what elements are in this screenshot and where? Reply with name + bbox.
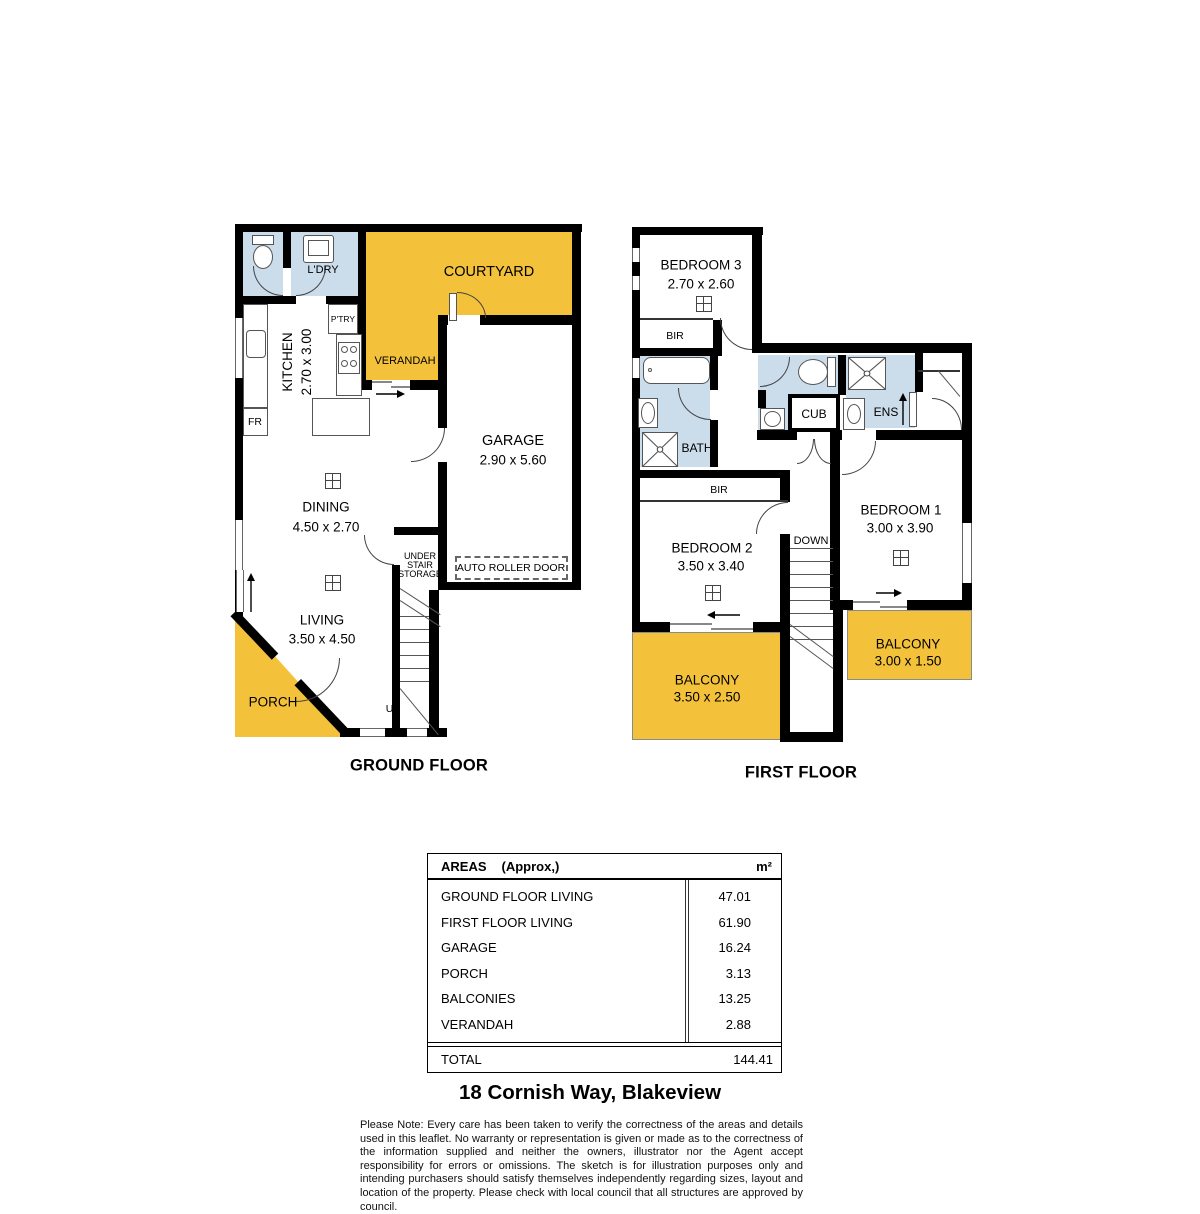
under-stair-label: STORAGE — [398, 569, 442, 579]
room-label-ens: ENS — [874, 405, 899, 419]
window-symbol — [696, 296, 712, 312]
sliding-door — [670, 623, 712, 625]
room-dims-living: 3.50 x 4.50 — [289, 632, 356, 647]
table-row: GROUND FLOOR LIVING 47.01 — [428, 884, 781, 910]
areas-table-body: GROUND FLOOR LIVING 47.01 FIRST FLOOR LI… — [428, 880, 781, 1043]
door-arc — [411, 428, 445, 462]
window — [360, 728, 385, 737]
total-label: TOTAL — [428, 1052, 482, 1067]
wall — [632, 235, 640, 632]
up-label: UP — [386, 703, 401, 715]
wall — [235, 224, 582, 232]
table-row: PORCH 3.13 — [428, 961, 781, 987]
wall — [438, 325, 447, 428]
room-dims-bedroom2: 3.50 x 3.40 — [678, 559, 745, 574]
room-label-bir1: BIR — [666, 330, 684, 342]
door-arc — [756, 502, 788, 534]
wall — [632, 470, 790, 478]
door-arc — [364, 535, 394, 565]
shower-icon — [642, 432, 678, 467]
wall — [438, 462, 447, 582]
toilet-icon — [252, 235, 274, 245]
areas-title: AREAS — [428, 859, 487, 874]
first-floor-plan: BEDROOM 3 2.70 x 2.60 BIR BATH CUB ENS B… — [630, 225, 975, 745]
wall — [753, 622, 790, 632]
row-value: 61.90 — [661, 915, 781, 930]
room-dims-garage: 2.90 x 5.60 — [480, 453, 547, 468]
window — [236, 570, 244, 612]
wall — [752, 343, 972, 353]
room-label-porch: PORCH — [249, 695, 298, 710]
shower-screen — [909, 392, 917, 427]
sink-icon — [847, 404, 861, 424]
wall — [438, 315, 448, 325]
sliding-door — [372, 381, 392, 383]
first-floor-title: FIRST FLOOR — [745, 764, 857, 783]
wall — [394, 527, 447, 535]
table-row: GARAGE 16.24 — [428, 935, 781, 961]
window-symbol — [325, 575, 341, 591]
areas-table-header: AREAS (Approx,) m² — [428, 854, 781, 880]
wall — [283, 232, 291, 268]
property-address: 18 Cornish Way, Blakeview — [140, 1081, 1040, 1105]
wall — [780, 478, 790, 502]
areas-unit: m² — [756, 859, 781, 874]
room-label-bath: BATH — [681, 441, 712, 455]
burner-icon — [341, 346, 348, 353]
room-label-verandah: VERANDAH — [374, 355, 435, 367]
wall — [780, 534, 790, 742]
robe-front-line — [640, 318, 713, 320]
balcony-arrow — [706, 610, 740, 620]
sliding-door — [711, 628, 753, 630]
row-label: GROUND FLOOR LIVING — [428, 889, 593, 904]
ens-arrow — [898, 393, 908, 425]
wall — [780, 732, 843, 742]
table-row: VERANDAH 2.88 — [428, 1012, 781, 1038]
ground-floor-title: GROUND FLOOR — [350, 757, 488, 776]
sink-icon — [764, 411, 781, 427]
room-dims-balcony-right: 3.00 x 1.50 — [875, 654, 942, 669]
table-total-row: TOTAL 144.41 — [428, 1046, 781, 1072]
wall — [838, 355, 846, 395]
room-label-cub: CUB — [801, 407, 826, 421]
sliding-door — [880, 606, 907, 608]
window-symbol — [705, 585, 721, 601]
robe-front-line — [640, 500, 788, 502]
window — [235, 318, 243, 378]
door-arc — [932, 398, 962, 430]
entry-arrow — [246, 572, 256, 612]
window — [235, 520, 243, 570]
room-label-living: LIVING — [300, 613, 344, 628]
balcony-arrow — [876, 588, 902, 598]
toilet-icon — [253, 245, 273, 269]
door-arc — [814, 439, 831, 464]
room-label-fridge: FR — [248, 416, 262, 428]
room-label-bedroom2: BEDROOM 2 — [671, 541, 752, 556]
door-leaf — [449, 293, 457, 321]
row-label: FIRST FLOOR LIVING — [428, 915, 573, 930]
room-dims-bedroom1: 3.00 x 3.90 — [867, 521, 934, 536]
linen-shelf-diagonal — [938, 370, 961, 397]
wall — [438, 582, 581, 590]
sliding-door — [853, 601, 880, 603]
ground-floor-plan: COURTYARD VERANDAH L'DRY P'TRY FR KITCHE… — [233, 223, 583, 741]
wall — [480, 315, 572, 325]
room-label-kitchen: KITCHEN 2.70 x 3.00 — [278, 302, 318, 422]
wall — [632, 348, 722, 356]
room-dims-bedroom3: 2.70 x 2.60 — [668, 277, 735, 292]
areas-table: AREAS (Approx,) m² GROUND FLOOR LIVING 4… — [427, 853, 782, 1073]
room-label-bedroom3: BEDROOM 3 — [660, 258, 741, 273]
room-dims-balcony-left: 3.50 x 2.50 — [674, 690, 741, 705]
wall — [572, 224, 581, 590]
entry-arrow — [376, 389, 406, 399]
toilet-icon — [827, 357, 836, 387]
areas-subtitle: (Approx,) — [502, 859, 560, 874]
sink-icon — [641, 402, 655, 424]
kitchen-bench — [312, 398, 370, 436]
shower-icon — [848, 357, 886, 390]
burner-icon — [341, 360, 348, 367]
sliding-door — [391, 386, 410, 388]
wall — [632, 622, 670, 632]
room-label-courtyard: COURTYARD — [444, 264, 535, 280]
row-value: 3.13 — [661, 966, 781, 981]
row-value: 13.25 — [661, 991, 781, 1006]
room-label-pantry: P'TRY — [331, 314, 355, 324]
door-arc — [720, 318, 752, 350]
row-label: VERANDAH — [428, 1017, 513, 1032]
table-column-divider — [685, 880, 689, 1042]
room-label-dining: DINING — [302, 500, 349, 515]
row-value: 2.88 — [661, 1017, 781, 1032]
window — [407, 728, 427, 737]
room-label-bedroom1: BEDROOM 1 — [860, 503, 941, 518]
wall — [710, 356, 718, 390]
wall — [907, 600, 972, 610]
toilet-icon — [798, 359, 828, 385]
door-arc — [797, 439, 814, 464]
kitchen-name: KITCHEN — [280, 332, 295, 391]
door-arc — [842, 441, 876, 475]
total-value: 144.41 — [733, 1052, 781, 1067]
door-arc — [296, 658, 340, 702]
burner-icon — [350, 360, 357, 367]
row-label: GARAGE — [428, 940, 497, 955]
row-value: 16.24 — [661, 940, 781, 955]
window-symbol — [893, 550, 909, 566]
stairs-up — [400, 616, 429, 692]
wall — [758, 390, 766, 408]
wall — [385, 728, 407, 737]
room-label-laundry: L'DRY — [307, 264, 338, 276]
wall — [632, 227, 763, 235]
wall — [833, 610, 843, 742]
bathtub-drain — [648, 368, 652, 372]
laundry-trough-icon — [308, 240, 329, 256]
window — [632, 358, 640, 378]
window-symbol — [325, 473, 341, 489]
window — [632, 276, 640, 290]
wall — [876, 430, 962, 440]
window — [962, 523, 972, 583]
down-label: DOWN — [794, 535, 829, 547]
roller-door-label: AUTO ROLLER DOOR — [457, 562, 565, 574]
kitchen-sink-icon — [246, 330, 266, 358]
bathtub-icon — [643, 357, 710, 384]
wall — [410, 380, 447, 390]
kitchen-dims: 2.70 x 3.00 — [299, 329, 314, 396]
wall — [830, 600, 853, 610]
burner-icon — [350, 346, 357, 353]
wall — [915, 353, 923, 392]
room-label-balcony-left: BALCONY — [675, 673, 740, 688]
room-dims-dining: 4.50 x 2.70 — [293, 520, 360, 535]
table-row: FIRST FLOOR LIVING 61.90 — [428, 910, 781, 936]
row-label: PORCH — [428, 966, 488, 981]
table-row: BALCONIES 13.25 — [428, 986, 781, 1012]
window — [632, 248, 640, 262]
room-label-balcony-right: BALCONY — [876, 637, 941, 652]
row-label: BALCONIES — [428, 991, 515, 1006]
verandah-area — [366, 315, 438, 380]
row-value: 47.01 — [661, 889, 781, 904]
room-label-bir2: BIR — [710, 484, 728, 496]
wall — [752, 235, 762, 343]
room-label-garage: GARAGE — [482, 433, 544, 449]
